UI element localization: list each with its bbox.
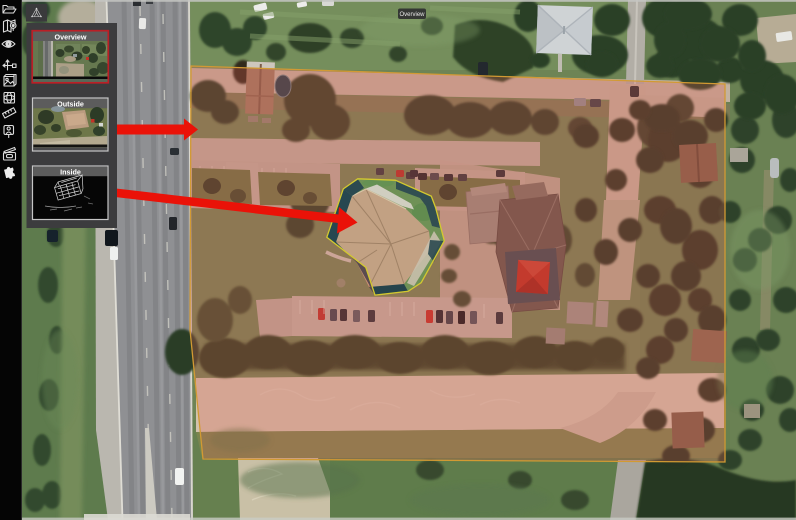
svg-text:Inside: Inside xyxy=(60,167,81,176)
svg-text:Overview: Overview xyxy=(399,12,425,18)
svg-text:Overview: Overview xyxy=(55,32,87,41)
svg-text:Outside: Outside xyxy=(57,99,84,108)
